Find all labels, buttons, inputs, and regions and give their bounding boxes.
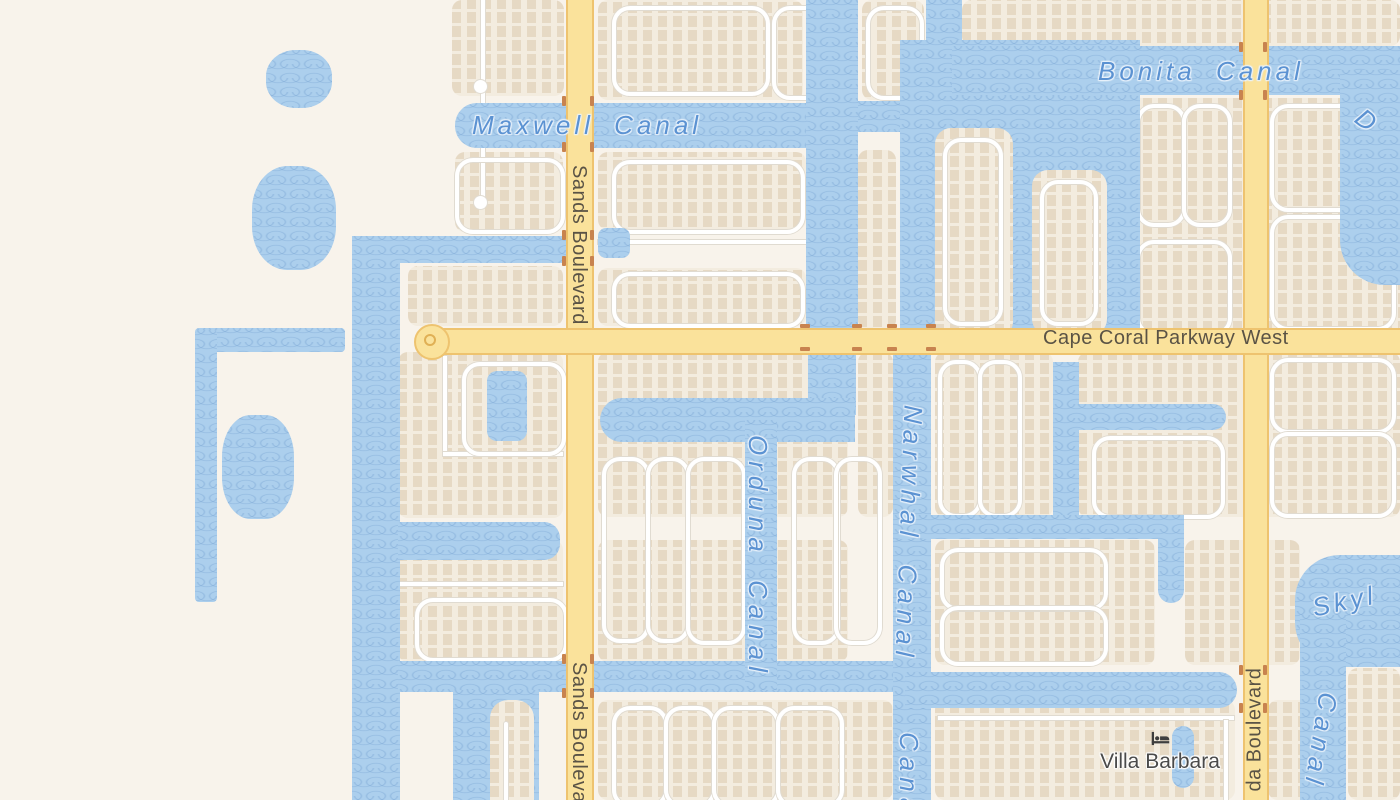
canal-water [1053,362,1079,527]
peninsula-block [1032,170,1107,335]
poi-villa-barbara[interactable]: Villa Barbara [1080,728,1240,774]
peninsula-block [490,700,534,800]
bridge-marker [590,654,594,664]
pond [487,371,527,441]
residential-block [452,0,564,96]
road-label-cape-coral-parkway-west: Cape Coral Parkway West [1043,327,1289,350]
bridge-marker [852,324,862,328]
bridge-marker [852,347,862,351]
canal-label-bonita: Bonita Canal [1098,56,1304,87]
street-loop [938,360,982,518]
canal-label-orduna: Orduna Canal [742,435,773,678]
street-loop [940,548,1108,611]
street-loop [612,160,805,234]
bridge-marker [590,96,594,106]
bridge-marker [562,142,566,152]
street [443,356,447,456]
street-loop [1182,104,1232,227]
bridge-marker [887,324,897,328]
bridge-marker [1239,42,1243,52]
street-loop [1270,432,1396,518]
canal-stub-water [598,228,630,258]
bridge-marker [562,654,566,664]
canal-water [195,330,217,602]
street-loop [1136,104,1186,227]
canal-water [1158,515,1184,603]
street-loop [612,6,770,96]
cul-de-sac [474,80,487,93]
street-loop [664,706,716,800]
cul-de-sac-bulb-inner [424,334,436,346]
canal-water [352,236,567,263]
canal-label-fragment-south: Canal [893,732,924,800]
bridge-marker [800,347,810,351]
bridge-marker [800,324,810,328]
residential-block [1348,668,1400,800]
bridge-marker [926,347,936,351]
street-loop [792,457,840,645]
road-label-sands-boulevard: Sands Boulevard [567,165,590,325]
street [504,722,508,800]
pond [266,50,332,108]
bridge-marker [1263,90,1267,100]
bridge-marker [1263,42,1267,52]
peninsula-block [935,128,1013,338]
bridge-marker [1239,665,1243,675]
street-loop [612,272,805,328]
road-label-agualinda-boulevard: da Boulevard [1244,652,1267,792]
bridge-marker [926,324,936,328]
street-loop [646,457,690,643]
street-loop [686,457,746,645]
bridge-marker [590,688,594,698]
street-loop [455,158,565,234]
bridge-marker [590,230,594,240]
road-label-sands-boulevard-south: Sands Boulevard [567,662,590,800]
street-loop [834,457,882,645]
street-loop [712,706,780,800]
bridge-marker [590,142,594,152]
street-loop [1040,180,1098,326]
bridge-marker [1239,90,1243,100]
canal-stub-water [398,522,560,560]
canal-water [893,515,1183,539]
bridge-marker [590,256,594,266]
canal-water [905,672,1237,708]
west-canal-water [352,236,400,800]
street-loop [415,598,568,662]
street-loop [602,457,650,643]
street-loop [940,606,1108,666]
street-loop [1092,436,1225,519]
canal-water [600,398,855,442]
street-loop [612,706,668,800]
street-loop [943,138,1003,326]
street-loop [978,360,1022,518]
canal-water [195,328,345,352]
bridge-marker [562,230,566,240]
pond [252,166,336,270]
bridge-marker [887,347,897,351]
canal-water [398,661,908,692]
residential-block [408,266,563,326]
pond [222,415,294,519]
street [938,716,1234,720]
bridge-marker [562,688,566,698]
canal-water [1076,404,1226,430]
street-loop [1136,240,1232,336]
street [398,582,563,586]
canal-label-maxwell: Maxwell Canal [472,110,702,141]
map-canvas[interactable]: Maxwell Canal Bonita Canal Orduna Canal … [0,0,1400,800]
lodging-icon [1080,728,1240,750]
bridge-marker [562,96,566,106]
residential-block [858,150,896,330]
canal-water [1340,70,1400,285]
bridge-marker [1239,703,1243,713]
street-loop [1270,358,1396,434]
canal-water [806,0,858,332]
poi-label-villa-barbara: Villa Barbara [1080,750,1240,774]
bridge-marker [562,256,566,266]
street-loop [776,706,844,800]
